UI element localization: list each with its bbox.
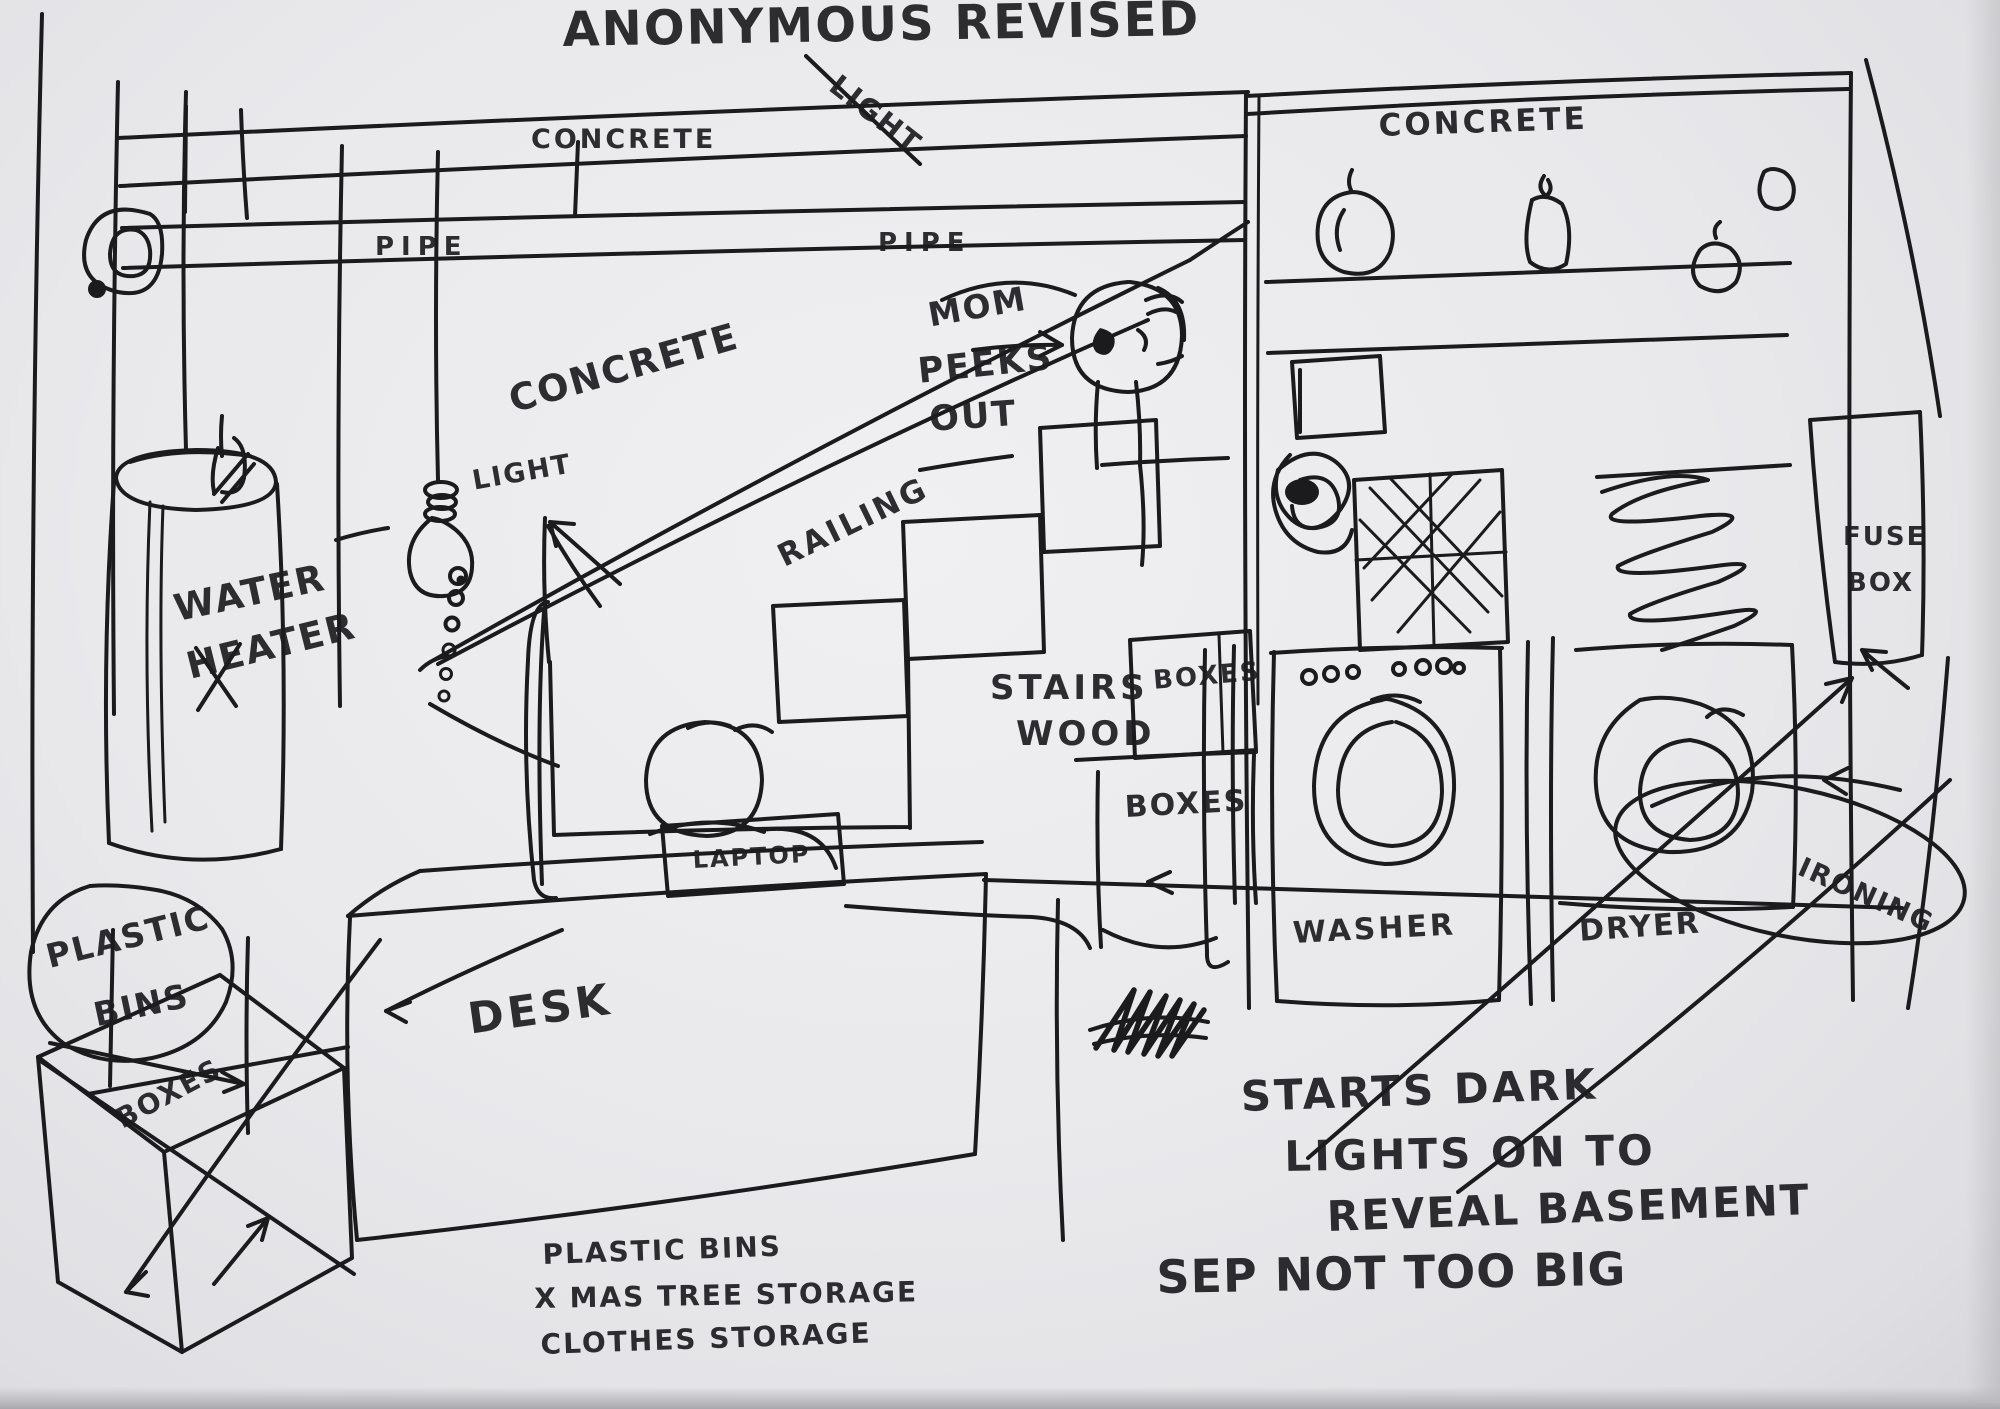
label-pipe-right: PIPE [878, 228, 972, 258]
water-heater-drawing [106, 92, 284, 860]
washer-drawing [1271, 638, 1553, 1005]
label-pipe-left: PIPE [375, 232, 469, 262]
note-size: SEP NOT TOO BIG [1156, 1242, 1627, 1304]
label-boxes-under-stairs: BOXES [1124, 784, 1248, 825]
label-fuse-box-line1: FUSE [1843, 522, 1926, 552]
sketch-page: ANONYMOUS REVISED LIGHT CONCRETE CONCRET… [0, 0, 2000, 1409]
scratched-out-word [1090, 990, 1208, 1056]
pipe-lines [84, 202, 1245, 298]
label-stairs-line1: STAIRS [990, 668, 1149, 708]
label-fuse-box-line2: BOX [1847, 568, 1914, 598]
desk-drawing [347, 602, 986, 1240]
note-lighting-line2: LIGHTS ON TO [1284, 1126, 1656, 1181]
paper-right-shadow [1966, 0, 2000, 1409]
label-stairs-line2: WOOD [1016, 714, 1156, 754]
note-storage-line2: X MAS TREE STORAGE [534, 1275, 918, 1315]
label-mom-line3: OUT [928, 394, 1019, 440]
label-concrete-beam: CONCRETE [531, 124, 716, 155]
label-concrete-laundry: CONCRETE [1378, 101, 1588, 144]
laundry-shelves-drawing [1266, 169, 1794, 650]
paper-bottom-edge [0, 1387, 2000, 1409]
